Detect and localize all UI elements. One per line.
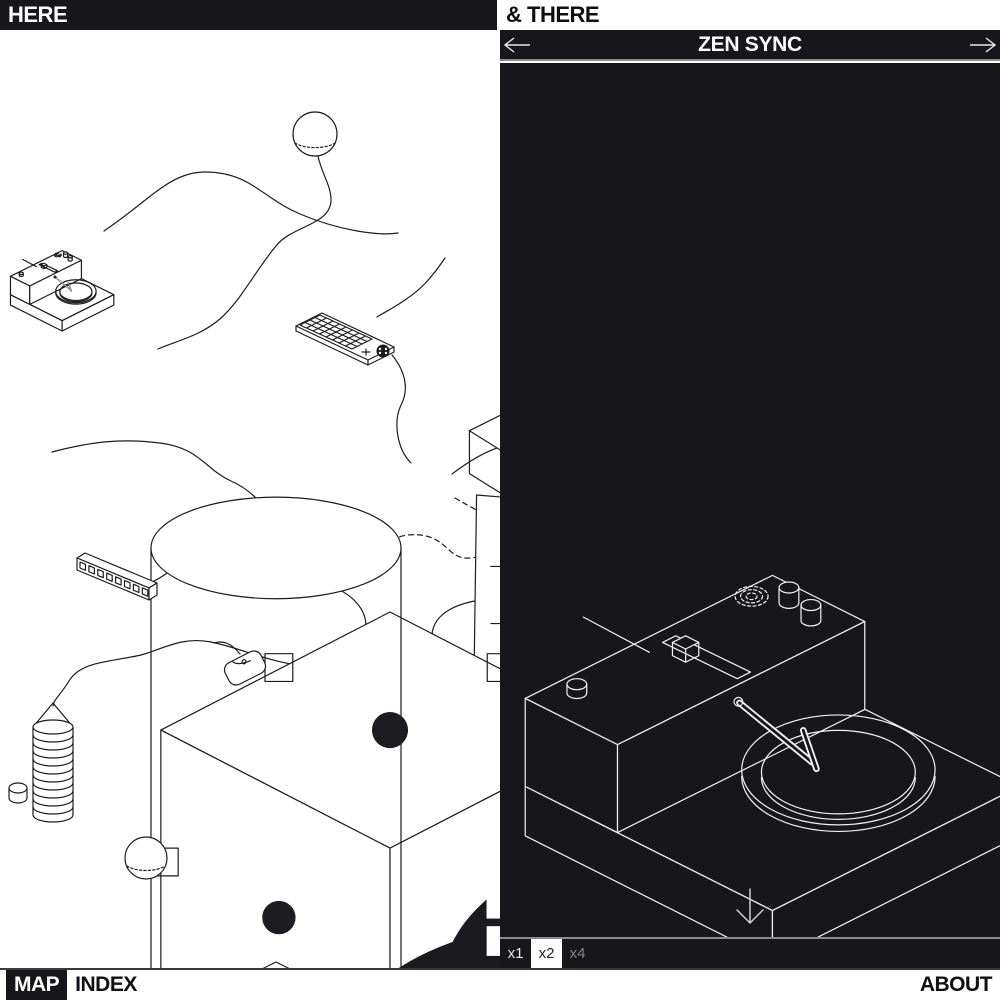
map-nav-link[interactable]: MAP — [6, 970, 67, 1000]
app-window: HERE & THERE ZEN SYNC — [0, 0, 1000, 1000]
map-device-sphere-bottom[interactable] — [125, 837, 167, 879]
map-device-small-knob[interactable] — [9, 783, 27, 803]
here-title: HERE — [8, 2, 67, 28]
map-device-lantern-tower[interactable] — [33, 703, 73, 822]
map-device-zen-sync-mini[interactable] — [10, 251, 113, 331]
map-device-connector-strip[interactable] — [77, 553, 157, 600]
zoom-controls: x1 x2 x4 — [500, 939, 1000, 968]
zoom-x4-button[interactable]: x4 — [562, 939, 593, 968]
device-map — [0, 0, 500, 1000]
viewer-title: ZEN SYNC — [698, 33, 802, 57]
viewer-header: ZEN SYNC — [500, 30, 1000, 61]
device-viewer — [500, 63, 1000, 937]
left-arrow-icon[interactable] — [500, 30, 534, 59]
there-title-bar: & THERE — [500, 0, 1000, 30]
about-nav-link[interactable]: ABOUT — [920, 973, 992, 997]
zoom-x2-button[interactable]: x2 — [531, 939, 562, 968]
footer: MAP INDEX ABOUT — [0, 970, 1000, 1000]
index-nav-link[interactable]: INDEX — [75, 973, 137, 997]
map-device-sphere-top[interactable] — [293, 112, 337, 156]
map-device-dice-left[interactable] — [154, 612, 500, 1000]
right-arrow-icon[interactable] — [966, 30, 1000, 59]
there-title: & THERE — [506, 2, 599, 28]
map-device-keyboard[interactable] — [296, 313, 394, 365]
here-title-bar: HERE — [0, 0, 497, 30]
zen-sync-illustration — [500, 63, 1000, 937]
here-panel: HERE — [0, 0, 500, 1000]
there-panel: & THERE ZEN SYNC x1 x2 — [500, 0, 1000, 1000]
zoom-x1-button[interactable]: x1 — [500, 939, 531, 968]
